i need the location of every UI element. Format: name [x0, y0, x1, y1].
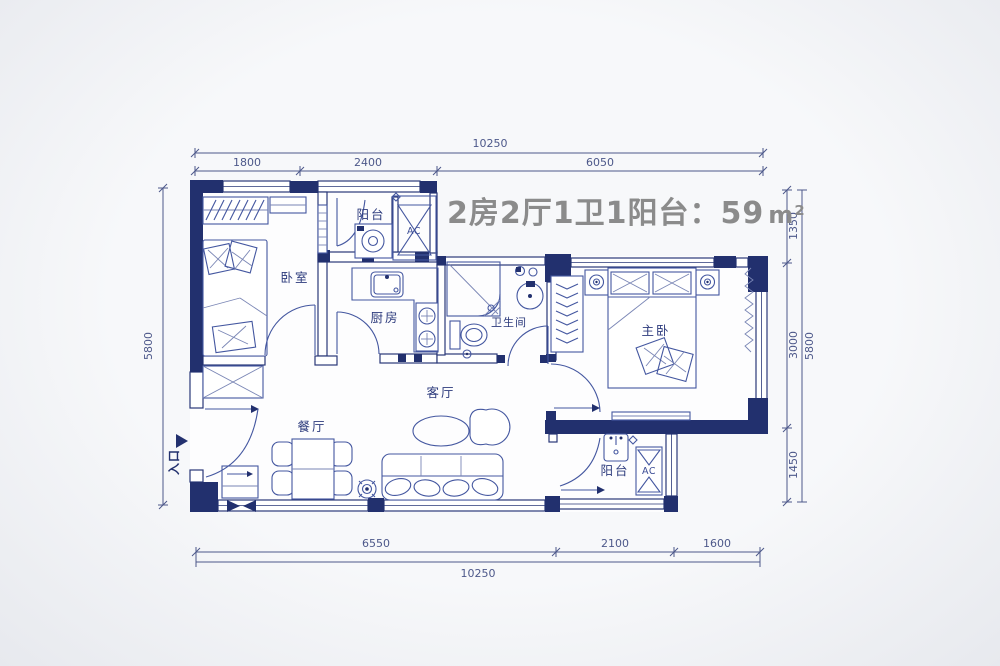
ac-top-label: AC	[407, 226, 421, 237]
single-bed	[203, 240, 267, 356]
shoe-cabinet	[222, 466, 258, 498]
dining-room-label: 餐厅	[297, 419, 326, 434]
bathroom-label: 卫生间	[491, 315, 527, 329]
entry-arrow-icon	[176, 434, 188, 448]
kitchen-sink	[371, 272, 403, 297]
dim-right-seg2: 3000	[787, 331, 800, 359]
living-room-label: 客厅	[426, 385, 455, 400]
dim-top-seg2: 2400	[354, 156, 382, 169]
nightstand-right	[696, 270, 719, 295]
floorplan-drawing: 10250 1800 2400 6050 6550 2100 1600 1025…	[0, 0, 1000, 666]
plan-title-text: 2房2厅1卫1阳台：59	[447, 196, 764, 231]
floorplan-canvas: 10250 1800 2400 6050 6550 2100 1600 1025…	[0, 0, 1000, 666]
kitchen-label: 厨房	[370, 310, 399, 325]
dim-top-seg1: 1800	[233, 156, 261, 169]
dim-right-total: 5800	[803, 332, 816, 360]
entry-label: 入口	[167, 449, 181, 475]
plan-title: 2房2厅1卫1阳台：59m²	[447, 196, 806, 231]
mop-sink	[604, 434, 628, 461]
dim-bottom-seg1: 6550	[362, 537, 390, 550]
washing-machine	[355, 224, 392, 258]
armchair	[470, 409, 510, 445]
master-wardrobe	[551, 276, 583, 352]
master-bedroom-label: 主卧	[641, 323, 670, 338]
balcony-top-label: 阳台	[356, 207, 385, 222]
dim-bottom-seg2: 2100	[601, 537, 629, 550]
plan-title-unit: m²	[768, 201, 806, 229]
dim-right-seg3: 1450	[787, 451, 800, 479]
ac-platform-bottom: AC	[636, 447, 662, 495]
ac-bottom-label: AC	[642, 466, 656, 477]
dim-top-total: 10250	[473, 137, 508, 150]
dim-left-total: 5800	[142, 332, 155, 360]
balcony-bottom-label: 阳台	[600, 463, 629, 478]
tall-cabinet	[203, 366, 263, 398]
stove	[416, 303, 438, 351]
dim-top-seg3: 6050	[586, 156, 614, 169]
sofa	[382, 454, 503, 500]
dim-bottom-total: 10250	[461, 567, 496, 580]
bedroom-label: 卧室	[280, 270, 309, 285]
dim-bottom-seg3: 1600	[703, 537, 731, 550]
nightstand-left	[585, 270, 608, 295]
